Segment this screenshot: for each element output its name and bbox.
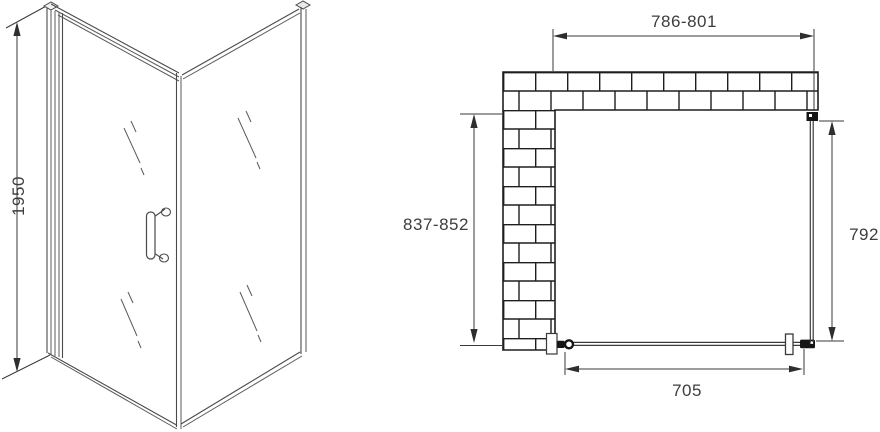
side-panel bbox=[181, 1, 310, 427]
handle-knob-plan bbox=[786, 334, 794, 355]
side-panel-dimension: 792 bbox=[816, 121, 879, 341]
door-hinge-profile bbox=[44, 2, 63, 358]
wall-profile-cap bbox=[296, 1, 310, 9]
glass-reflection-marks-door bbox=[121, 121, 144, 348]
door-leaf bbox=[48, 4, 181, 429]
glass-reflection-marks-panel bbox=[238, 111, 261, 342]
depth-dimension-label: 837-852 bbox=[403, 215, 469, 234]
extension-line-bottom bbox=[2, 355, 50, 379]
panel-wall-bracket bbox=[807, 112, 819, 121]
wall-jamb-profile bbox=[547, 334, 558, 355]
side-panel-plan bbox=[807, 112, 819, 342]
side-panel-dimension-label: 792 bbox=[849, 225, 879, 244]
door-width-dimension-label: 705 bbox=[672, 381, 702, 400]
hinge-knuckle bbox=[565, 340, 573, 348]
bracket-notch bbox=[809, 114, 812, 117]
depth-dimension: 837-852 bbox=[403, 114, 502, 346]
door-plan bbox=[557, 334, 815, 355]
technical-drawing-canvas: 1950 bbox=[0, 0, 880, 432]
plan-view: 786-801 837-852 792 705 bbox=[403, 12, 879, 400]
perspective-view: 1950 bbox=[2, 1, 310, 429]
door-handle bbox=[147, 208, 171, 262]
arrowhead-up bbox=[13, 22, 20, 36]
profile-top-cap bbox=[44, 2, 58, 10]
height-dimension-label: 1950 bbox=[9, 176, 28, 216]
height-dimension: 1950 bbox=[2, 4, 50, 379]
extension-line-top bbox=[6, 4, 50, 28]
width-dimension-label: 786-801 bbox=[651, 12, 717, 31]
hinge-bracket bbox=[557, 341, 565, 348]
door-width-dimension: 705 bbox=[565, 349, 804, 400]
handle-grip bbox=[147, 212, 156, 259]
drawing-svg: 1950 bbox=[0, 0, 880, 432]
brick-wall bbox=[503, 72, 818, 350]
